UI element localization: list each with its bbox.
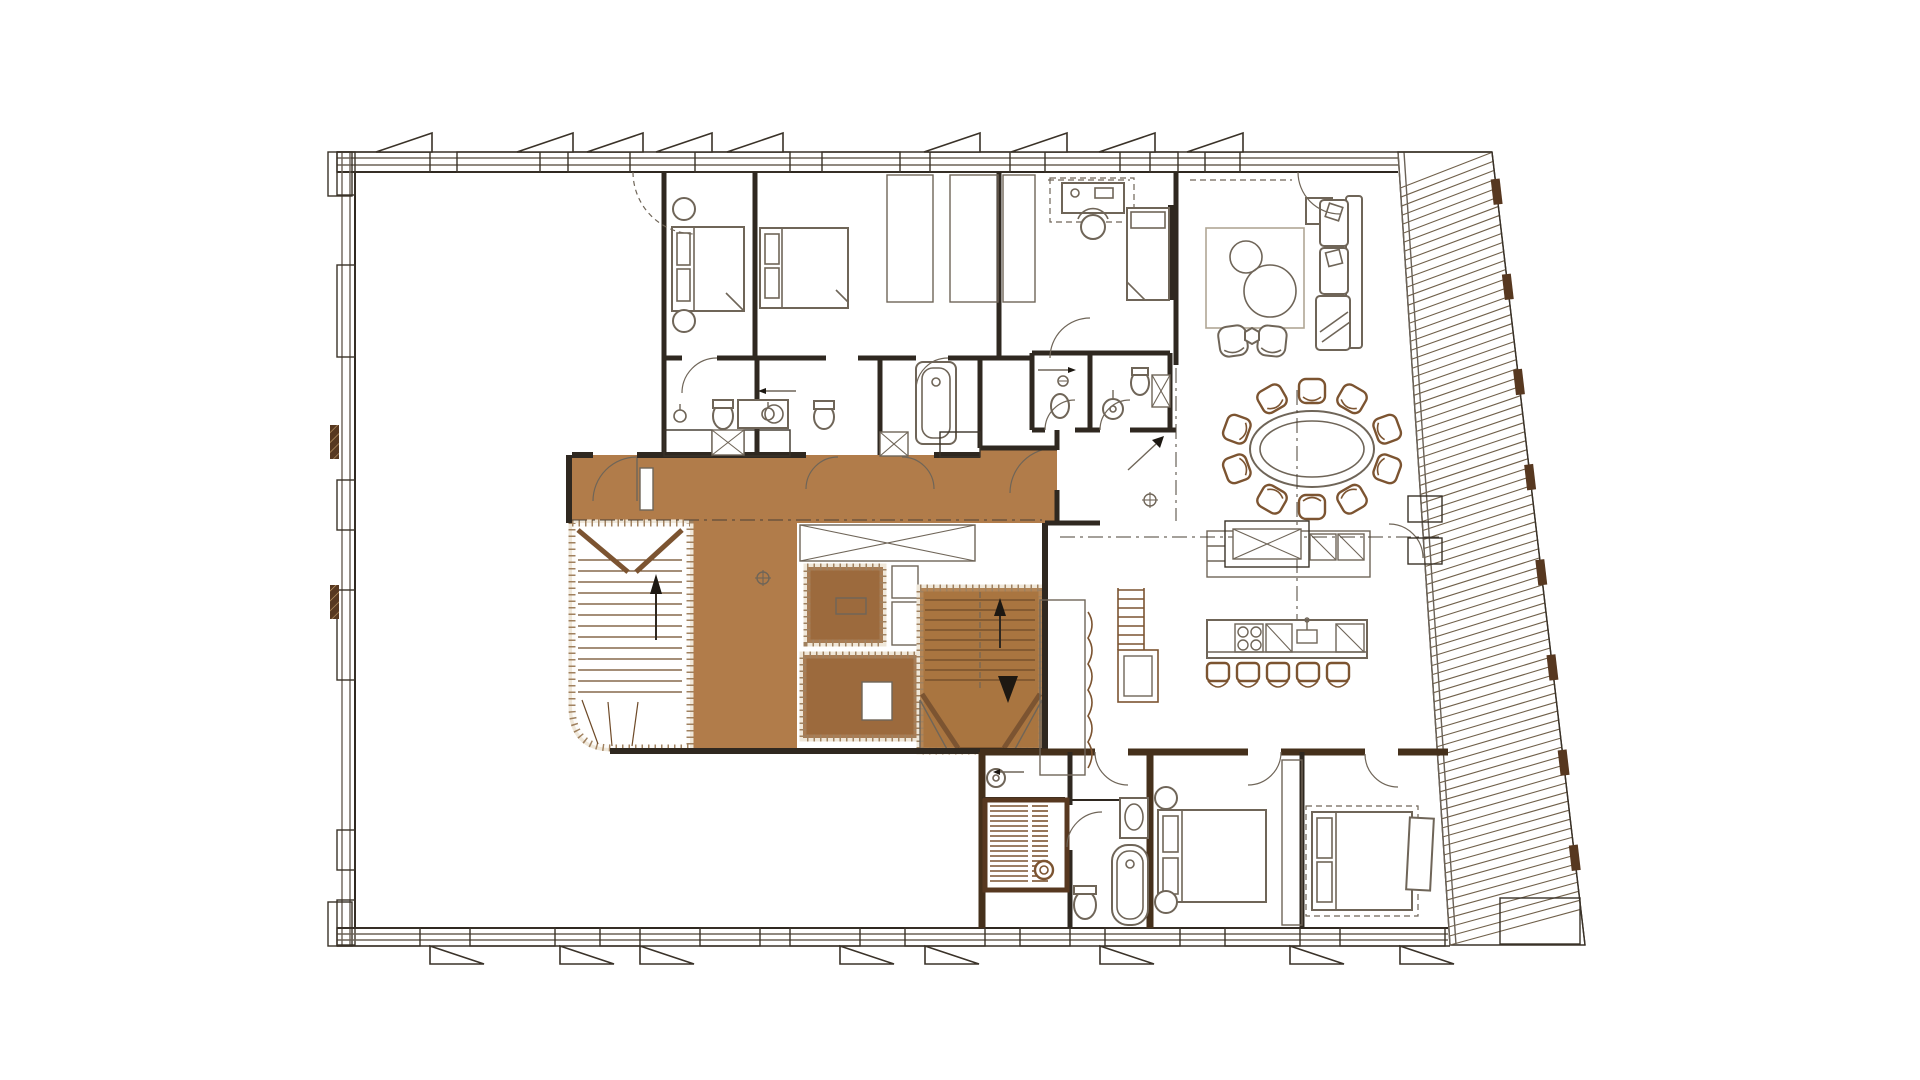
deck-line [1442, 792, 1567, 828]
nightstand [673, 198, 695, 220]
deck-line [1439, 747, 1561, 783]
wall-segment [600, 928, 640, 946]
coffee-table [1244, 265, 1296, 317]
dining-chair [1299, 379, 1325, 403]
terrace-post [1506, 274, 1509, 299]
toilet [1074, 891, 1096, 919]
deck-line [1440, 756, 1563, 792]
awning-flag [1011, 133, 1067, 152]
deck-line [1446, 846, 1574, 882]
dining-chair [1335, 482, 1370, 516]
double-bed [1158, 810, 1266, 902]
bar-stools [1207, 663, 1349, 687]
terrace-post [1551, 655, 1554, 680]
bar-stool [1297, 663, 1319, 687]
terrace-post [1495, 179, 1498, 204]
deck-line [1409, 288, 1508, 324]
terrace-outer-edge [1492, 152, 1585, 945]
door-swing [1365, 754, 1398, 787]
deck-line [1448, 873, 1577, 909]
deck-line [1436, 702, 1556, 738]
dining-chair [1255, 382, 1290, 416]
top-wall [337, 133, 1492, 172]
deck-line [1428, 567, 1541, 603]
entry-door-swing [1389, 524, 1423, 558]
vanity [738, 400, 788, 428]
wall-segment [905, 928, 985, 946]
bar-stool [1237, 663, 1259, 687]
bedroom-4 [1306, 754, 1434, 916]
deck-line [1429, 585, 1543, 621]
deck-line [1435, 675, 1554, 711]
bottom-wall-flags [430, 946, 1454, 964]
shelf-ladder [1118, 588, 1158, 702]
deck-line [1407, 260, 1504, 296]
bidet [1051, 394, 1069, 418]
hatched-wall-block [1408, 496, 1442, 522]
wall-segment [1225, 928, 1300, 946]
deck-line [1430, 603, 1545, 639]
deck-line [1446, 855, 1574, 891]
shelf-rungs [1118, 590, 1144, 644]
deck-line [1414, 360, 1516, 396]
armchair [1217, 324, 1249, 358]
dining-table [1250, 411, 1374, 487]
deck-line [1403, 188, 1497, 224]
bar-stool [1327, 663, 1349, 687]
dining-chair [1255, 482, 1290, 516]
dresser [1406, 817, 1434, 890]
door-swing [1248, 752, 1281, 785]
deck-line [1410, 306, 1510, 342]
awning-flag [1099, 133, 1155, 152]
wall-segment [1020, 928, 1070, 946]
deck-line [1425, 522, 1536, 558]
wardrobe [1282, 760, 1302, 925]
wall-segment [337, 590, 355, 680]
deck-line [1402, 170, 1495, 206]
shaft-box [712, 430, 744, 455]
awning-flag [640, 946, 694, 964]
staircase-right [920, 588, 1042, 751]
awning-flag [587, 133, 643, 152]
deck-line [1413, 351, 1515, 387]
deck-line [1412, 333, 1513, 369]
deck-line [1448, 882, 1577, 918]
deck-line [1424, 513, 1534, 549]
deck-line [1406, 242, 1502, 278]
awning-flag [1290, 946, 1344, 964]
shaft-box [1233, 529, 1301, 559]
wall-segment [457, 152, 540, 172]
deck-line [1444, 819, 1570, 855]
deck-line [1400, 152, 1492, 188]
awning-flag [1100, 946, 1154, 964]
awning-flag [924, 133, 980, 152]
wall-segment [337, 265, 355, 357]
deck-line [1404, 206, 1498, 242]
dining-chair [1221, 413, 1252, 446]
deck-line [1441, 774, 1565, 810]
awning-flag [560, 946, 614, 964]
sauna-stove [1035, 861, 1053, 879]
deck-line [1426, 549, 1538, 585]
deck-line [1431, 621, 1547, 657]
bar-stool [1207, 663, 1229, 687]
wall-segment [1045, 152, 1120, 172]
deck-line [1434, 666, 1552, 702]
nightstand [673, 310, 695, 332]
washbasin-tap [674, 410, 686, 422]
deck-line [1422, 477, 1530, 513]
deck-line [1449, 891, 1579, 927]
dining-chair [1371, 453, 1402, 486]
wardrobe [950, 175, 998, 302]
terrace-post [1573, 845, 1576, 870]
bottom-wall-segments [337, 928, 1445, 946]
deck-line [1415, 369, 1518, 405]
terrace-post [1517, 369, 1520, 394]
coffee-table [1230, 241, 1262, 273]
deck-line [1420, 459, 1528, 495]
door-swing [1095, 752, 1128, 785]
deck-line [1407, 251, 1504, 287]
terrace-post [1529, 464, 1532, 489]
shaft-box [880, 432, 908, 456]
wardrobe [1003, 175, 1035, 302]
study [1050, 178, 1169, 358]
deck-line [1449, 900, 1579, 936]
side-table [1245, 328, 1259, 344]
deck-line [1419, 441, 1526, 477]
awning-flag [727, 133, 783, 152]
deck-line [1438, 729, 1559, 765]
deck-line [1450, 909, 1581, 945]
sofa-seat [1320, 248, 1348, 294]
wall-segment [470, 928, 555, 946]
deck-line [1437, 711, 1558, 747]
deck-line [1445, 837, 1572, 873]
sofa-seat [1320, 200, 1348, 246]
terrace-post [1562, 750, 1565, 775]
shaft-box [800, 525, 975, 561]
desk-chair [1081, 215, 1105, 239]
deck-line [1406, 233, 1502, 269]
deck-line [1441, 765, 1564, 801]
awning-flag [840, 946, 894, 964]
awning-flag [656, 133, 712, 152]
wall-segment [1150, 152, 1178, 172]
dining-chair [1299, 495, 1325, 519]
deck-line [1439, 738, 1561, 774]
shaft-box [1152, 375, 1170, 407]
awning-flag [1400, 946, 1454, 964]
core-rooms [803, 566, 918, 738]
dining-area [1221, 379, 1403, 656]
deck-line [1428, 576, 1542, 612]
kitchen [1088, 588, 1367, 768]
bedroom-1 [633, 172, 744, 332]
wall-segment [930, 152, 1010, 172]
wall-segment [337, 480, 355, 530]
awning-flag [430, 946, 484, 964]
deck-line [1408, 270, 1506, 306]
wall-pier [330, 425, 339, 459]
deck-line [1445, 828, 1572, 864]
deck-line [1405, 224, 1500, 260]
deck-line [1402, 179, 1495, 215]
awning-flag [376, 133, 432, 152]
top-wall-segments [337, 152, 1240, 172]
dining-chair [1371, 413, 1402, 446]
wall-segment [568, 152, 630, 172]
deck-line [1443, 801, 1568, 837]
deck-line [1415, 378, 1518, 414]
deck-line [1411, 315, 1511, 351]
wall-segment [337, 152, 430, 172]
sauna-door-swing [1067, 812, 1102, 847]
wardrobe [887, 175, 933, 302]
core-zone [572, 448, 1057, 751]
deck-line [1417, 405, 1522, 441]
terrace-post [1540, 560, 1543, 585]
deck-line [1433, 657, 1551, 693]
wall-segment [695, 152, 790, 172]
deck-line [1418, 414, 1523, 450]
bath-suite [1074, 752, 1148, 925]
deck-line [1432, 639, 1549, 675]
deck-line [1416, 387, 1520, 423]
deck-line [1401, 161, 1493, 197]
deck-line [1413, 342, 1514, 378]
wall-segment [790, 928, 860, 946]
daybed [1127, 208, 1169, 300]
wardrobe-wave [1088, 612, 1092, 768]
wall-segment [822, 152, 900, 172]
deck-line [1418, 423, 1524, 459]
deck-line [1419, 432, 1525, 468]
armchair [1257, 325, 1288, 358]
deck-line [1438, 720, 1559, 756]
wall-segment [700, 928, 760, 946]
deck-line [1442, 783, 1566, 819]
deck-line [1409, 279, 1507, 315]
double-bed [1312, 812, 1412, 910]
deck-line [1436, 693, 1556, 729]
deck-line [1433, 648, 1550, 684]
stairwell-left [572, 523, 690, 748]
nightstand [1155, 787, 1177, 809]
wall-pier [330, 585, 339, 619]
deck-line [1429, 594, 1544, 630]
bedroom-2 [760, 228, 848, 308]
deck-line [1427, 558, 1540, 594]
nightstand [1155, 891, 1177, 913]
deck-line [1447, 864, 1575, 900]
floor-plan-canvas [0, 0, 1920, 1080]
left-wall-segments [337, 152, 355, 945]
deck-line [1423, 495, 1532, 531]
wall-segment [1205, 152, 1240, 172]
wall-segment [337, 830, 355, 870]
top-wall-flags [376, 133, 1243, 152]
deck-line [1420, 450, 1527, 486]
deck-line [1412, 324, 1513, 360]
deck-line [1403, 197, 1497, 233]
dining-chair [1221, 453, 1252, 486]
dining-chair [1335, 382, 1370, 416]
bar-stool [1267, 663, 1289, 687]
deck-line [1421, 468, 1529, 504]
deck-line [1444, 810, 1570, 846]
deck-line [1416, 396, 1520, 432]
deck-line [1410, 297, 1509, 333]
deck-line [1435, 684, 1554, 720]
bottom-wall [337, 928, 1454, 964]
bedroom-3 [1155, 752, 1281, 913]
sauna-suite [985, 769, 1102, 890]
deck-line [1432, 630, 1548, 666]
wall-segment [1105, 928, 1180, 946]
deck-line [1431, 612, 1546, 648]
deck-line [1405, 215, 1500, 251]
left-wall [328, 152, 355, 946]
awning-flag [517, 133, 573, 152]
deck-line [1422, 486, 1531, 522]
awning-flag [1187, 133, 1243, 152]
awning-flag [925, 946, 979, 964]
door-swing [682, 358, 717, 393]
wall-segment [1340, 928, 1445, 946]
